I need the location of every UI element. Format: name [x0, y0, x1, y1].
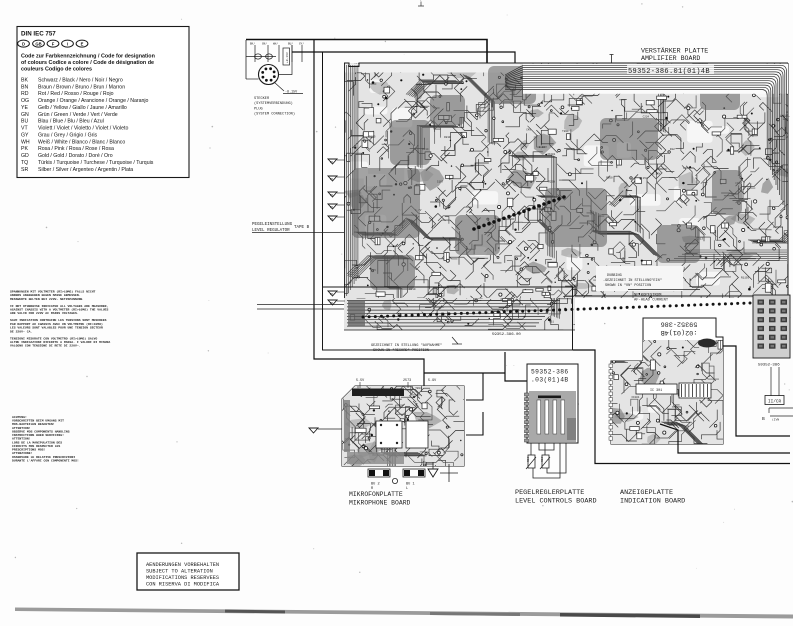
svg-text:PLUG: PLUG [254, 108, 263, 112]
svg-text:R219: R219 [444, 136, 451, 139]
svg-text:Blau / Blue / Blu / Bleu / Azu: Blau / Blue / Blu / Bleu / Azul [38, 119, 104, 125]
svg-text:NF-KOPFSTROM: NF-KOPFSTROM [634, 294, 662, 298]
svg-text:Weiß / White / Blanco / Blanc: Weiß / White / Blanco / Blanc / Blanco [38, 139, 125, 145]
svg-text:75: 75 [330, 178, 334, 181]
svg-text:BK/: BK/ [250, 42, 255, 46]
svg-text:0.15V: 0.15V [639, 177, 647, 180]
svg-text:(IVN: (IVN [772, 418, 779, 422]
svg-text:II/CR: II/CR [768, 400, 782, 405]
svg-text:couleurs Codigo de colores: couleurs Codigo de colores [21, 67, 92, 73]
svg-text:+8.15V: +8.15V [286, 52, 289, 63]
svg-text:GY: GY [21, 133, 29, 139]
svg-text:75: 75 [330, 218, 334, 221]
svg-text:R10: R10 [541, 456, 544, 462]
svg-text:RD: RD [21, 91, 29, 97]
svg-text:AMPLIFIER BOARD: AMPLIFIER BOARD [641, 55, 700, 62]
svg-text:PEGELEINSTELLUNG: PEGELEINSTELLUNG [252, 223, 293, 227]
svg-text:T204: T204 [415, 387, 422, 390]
svg-text:C45: C45 [526, 128, 531, 131]
svg-text:VALGONO CON TENSIONE DI RETE D: VALGONO CON TENSIONE DI RETE DI 220V~. [10, 344, 81, 348]
svg-text:75: 75 [330, 293, 334, 296]
svg-text:2573: 2573 [403, 379, 411, 383]
svg-text:R1103: R1103 [741, 276, 749, 279]
svg-text:Violett / Violet / Violetto /: Violett / Violet / Violetto / Violet / V… [38, 126, 128, 132]
svg-text:59352-386.00: 59352-386.00 [492, 333, 521, 337]
svg-text:BU: BU [21, 119, 28, 125]
svg-text:Türkis / Turquoise / Turchese: Türkis / Turquoise / Turchese / Turquois… [38, 160, 154, 166]
svg-text:GY/: GY/ [299, 42, 304, 46]
svg-text:BU 1: BU 1 [406, 483, 415, 487]
svg-text:LEVEL CONTROLS BOARD: LEVEL CONTROLS BOARD [515, 498, 597, 506]
svg-text:-GEZEICHNET IN STELLUNG"EIN": -GEZEICHNET IN STELLUNG"EIN" [603, 278, 662, 283]
svg-text:ARE VALID FOR 220V AC MAINS VO: ARE VALID FOR 220V AC MAINS VOLTAGES. [10, 311, 79, 315]
svg-text:DE 220V~ CA.: DE 220V~ CA. [10, 329, 32, 333]
svg-text:VERSTÄRKER PLATTE: VERSTÄRKER PLATTE [641, 47, 708, 55]
svg-text:MIKROFONPLATTE: MIKROFONPLATTE [349, 491, 403, 498]
svg-text:GN/: GN/ [262, 42, 267, 46]
svg-text:R360: R360 [606, 177, 613, 180]
svg-text:OG: OG [21, 98, 29, 104]
svg-text:D: D [22, 42, 25, 47]
svg-text:SHOWN IN "RECORD" POSITION: SHOWN IN "RECORD" POSITION [373, 348, 429, 353]
svg-text:DUBBING: DUBBING [607, 274, 622, 278]
svg-text:B: B [762, 416, 765, 422]
svg-text:MODIFICATIONS RESERVEES: MODIFICATIONS RESERVEES [146, 575, 219, 581]
svg-text:Rot / Red / Rosso / Rouge / Ro: Rot / Red / Rosso / Rouge / Rojo [38, 91, 114, 97]
svg-text:DIN IEC 757: DIN IEC 757 [21, 31, 56, 38]
svg-text:C45: C45 [467, 182, 472, 185]
svg-text:VT: VT [21, 126, 28, 132]
svg-text:GEZEICHNET IN STELLUNG "AUFNAH: GEZEICHNET IN STELLUNG "AUFNAHME" [371, 343, 442, 348]
svg-text:.03(01)4B: .03(01)4B [531, 377, 569, 384]
svg-text:of colours Codice a colore / C: of colours Codice a colore / Code de dés… [21, 60, 154, 66]
svg-text:MIKROPHONE BOARD: MIKROPHONE BOARD [349, 500, 411, 507]
svg-text:Grün / Green / Verde / Vert /: Grün / Green / Verde / Vert / Verde [38, 112, 118, 118]
svg-text:SHOWN IN "ON" POSITION: SHOWN IN "ON" POSITION [605, 283, 651, 288]
svg-text:Silber / Silver / Argenteo / A: Silber / Silver / Argenteo / Argentin / … [38, 167, 133, 173]
svg-text:R105: R105 [369, 135, 376, 138]
svg-text:TAPE B: TAPE B [294, 226, 310, 230]
svg-text:D12: D12 [670, 148, 675, 151]
svg-text:Orange / Orange / Arancione /: Orange / Orange / Arancione / Orange / N… [38, 98, 149, 104]
svg-text::02(01)4B: :02(01)4B [661, 328, 698, 336]
svg-text:0.15V: 0.15V [652, 172, 660, 175]
svg-text:GD: GD [21, 153, 29, 159]
svg-text:Braun / Brown / Bruno / Brun /: Braun / Brown / Bruno / Brun / Marron [38, 84, 125, 90]
svg-text:(SYSTEM CONNECTION): (SYSTEM CONNECTION) [254, 112, 295, 117]
svg-text:SUBJECT TO ALTERATION: SUBJECT TO ALTERATION [146, 569, 213, 575]
svg-text:I: I [67, 42, 68, 47]
svg-text:75: 75 [330, 161, 334, 164]
svg-text:75: 75 [330, 206, 334, 209]
svg-text:Gelb / Yellow / Giallo / Jaune: Gelb / Yellow / Giallo / Jaune / Amarill… [38, 105, 127, 111]
svg-text:IC201: IC201 [631, 396, 639, 399]
svg-text:R51: R51 [549, 320, 554, 323]
svg-text:E: E [81, 42, 84, 47]
svg-text:Code zur Farbkennzeichnung / C: Code zur Farbkennzeichnung / Code for de… [21, 54, 155, 60]
svg-text:IC 301: IC 301 [650, 389, 662, 393]
svg-text:WH/: WH/ [273, 42, 278, 46]
svg-text:R10: R10 [527, 456, 530, 462]
svg-text:4.7V: 4.7V [743, 120, 750, 123]
svg-text:PK: PK [21, 146, 28, 152]
svg-text:5.5V: 5.5V [356, 379, 365, 383]
svg-text:75: 75 [330, 194, 334, 197]
svg-text:R228: R228 [548, 181, 555, 184]
svg-text:C224: C224 [643, 115, 650, 118]
svg-text:ANZEIGEPLATTE: ANZEIGEPLATTE [620, 489, 673, 497]
svg-text:STECKER: STECKER [254, 97, 270, 101]
svg-text:5.9V: 5.9V [428, 379, 437, 383]
svg-text:Grau / Grey / Grigio / Gris: Grau / Grey / Grigio / Gris [38, 133, 97, 139]
svg-text:Gold / Gold / Dorato / Doré /: Gold / Gold / Dorato / Doré / Oro [38, 153, 113, 159]
svg-text:YE: YE [21, 105, 28, 111]
svg-text:Schwarz / Black / Nero / Noir: Schwarz / Black / Nero / Noir / Negro [38, 78, 123, 84]
svg-text:A010-: A010- [780, 115, 790, 119]
svg-text:0.15V: 0.15V [539, 146, 547, 149]
svg-text:F: F [52, 42, 55, 47]
svg-text:SR: SR [21, 167, 28, 173]
svg-text:(SYSTEMVERBINDUNG): (SYSTEMVERBINDUNG) [254, 101, 293, 106]
svg-text:T204: T204 [562, 130, 569, 133]
svg-text:TQ: TQ [21, 160, 28, 166]
svg-text:L: L [406, 487, 408, 491]
svg-text:AENDERUNGEN VORBEHALTEN: AENDERUNGEN VORBEHALTEN [146, 562, 219, 568]
svg-text:MESSWERTE GELTEN BEI 220V~ NET: MESSWERTE GELTEN BEI 220V~ NETZSPANNUNG [10, 297, 83, 301]
svg-text:GN: GN [21, 112, 29, 118]
svg-text:CON RISERVA DI MODIFICA: CON RISERVA DI MODIFICA [146, 582, 220, 588]
svg-text:59352-386: 59352-386 [661, 320, 698, 328]
svg-text:DURANTE L'AFFARI CON COMPONENT: DURANTE L'AFFARI CON COMPONENTI MOS! [12, 458, 79, 462]
svg-text:BK: BK [21, 78, 28, 84]
svg-text:GB: GB [35, 42, 41, 47]
svg-text:BN: BN [21, 84, 28, 90]
svg-text:IC201: IC201 [547, 153, 555, 156]
svg-text:59352-386: 59352-386 [531, 369, 569, 376]
svg-text:BU/: BU/ [288, 42, 293, 46]
svg-text:C107: C107 [437, 180, 444, 183]
svg-text:AF-HEAD CURRENT: AF-HEAD CURRENT [634, 299, 669, 303]
svg-text:INDICATION BOARD: INDICATION BOARD [620, 498, 685, 506]
svg-text:PEGELREGLERPLATTE: PEGELREGLERPLATTE [515, 489, 584, 497]
svg-text:75: 75 [330, 302, 334, 305]
svg-text:WH: WH [21, 139, 30, 145]
svg-text:BU 2: BU 2 [371, 483, 380, 487]
svg-text:Rosa / Pink / Rosa / Rose / Ro: Rosa / Pink / Rosa / Rose / Rosa [38, 146, 114, 152]
svg-text:59352-386: 59352-386 [758, 364, 780, 368]
svg-text:59352-386.01(01)4B: 59352-386.01(01)4B [628, 68, 710, 76]
